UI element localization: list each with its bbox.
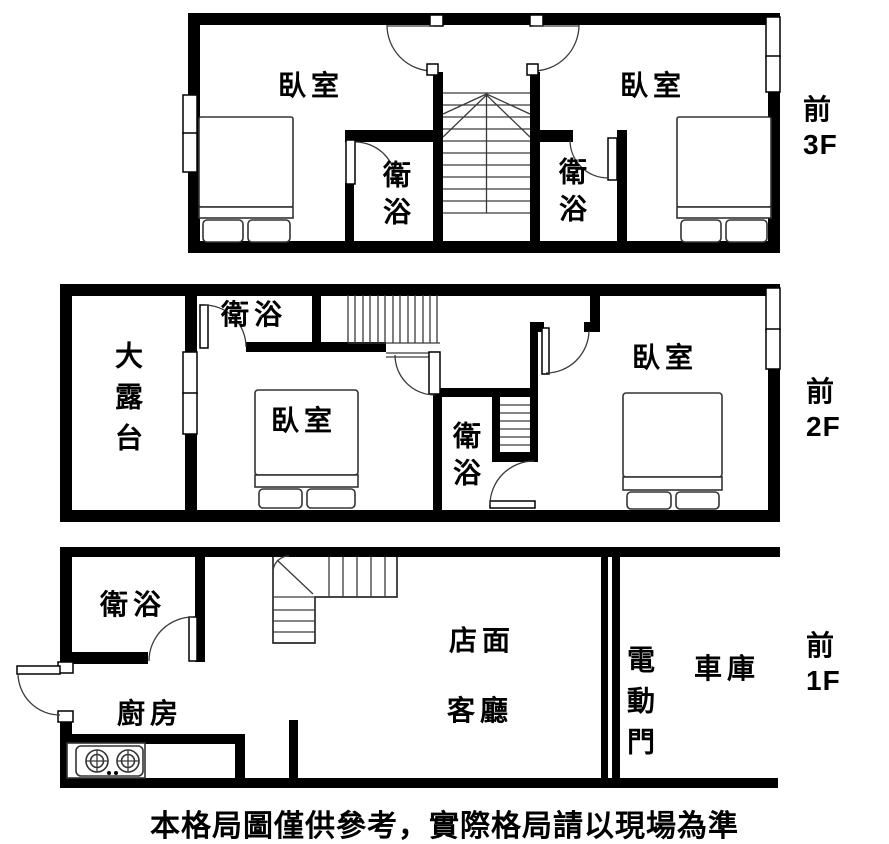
door-leaf	[200, 305, 208, 348]
bed-footboard	[623, 477, 722, 490]
wall-segment	[60, 547, 780, 557]
side-label-level: 1F	[806, 663, 841, 698]
wall-segment	[60, 510, 780, 522]
floor-1f	[17, 547, 780, 788]
kitchen-wall	[235, 734, 245, 788]
floor-side-label-3f: 前 3F	[803, 92, 838, 162]
door-swing-arc	[149, 617, 193, 661]
wall-segment	[60, 284, 72, 522]
door-jamb	[530, 15, 543, 26]
room-label-bath-top-2f: 衛浴	[221, 301, 287, 329]
wall-stub	[289, 720, 298, 778]
door-leaf	[608, 138, 617, 180]
disclaimer-caption: 本格局圖僅供參考，實際格局請以現場為準	[150, 801, 739, 844]
door-leaf	[429, 352, 440, 394]
door-leaf	[346, 140, 355, 184]
wall-segment	[345, 183, 354, 253]
room-label-bedroom-right-2f: 臥室	[632, 344, 698, 372]
window	[183, 352, 197, 394]
window	[766, 56, 780, 92]
room-label-bedroom-right-3f: 臥室	[620, 72, 686, 100]
door-threshold	[386, 353, 429, 357]
stair-treads	[273, 610, 315, 632]
door-leaf	[527, 64, 538, 75]
stairs-1f	[273, 556, 397, 643]
wall-segment	[60, 778, 778, 788]
room-label-bath-left-3f: 衛浴	[381, 160, 409, 234]
bed-pillow	[248, 220, 290, 242]
room-label-bath-1f: 衛浴	[100, 591, 166, 619]
room-label-bath-middle-2f: 衛浴	[451, 421, 479, 495]
stair-outline	[273, 557, 397, 643]
stair-winder-diagonal	[277, 560, 313, 594]
door-swing-arc	[546, 331, 589, 373]
room-label-storefront-1f: 店面	[449, 627, 515, 655]
stairs-3f	[443, 93, 530, 213]
stair-treads	[348, 295, 437, 343]
side-label-level: 2F	[806, 409, 841, 444]
bed-pillow	[681, 220, 721, 242]
stairs-2f	[348, 295, 440, 343]
floor-side-label-2f: 前 2F	[806, 374, 841, 444]
bed-pillow	[203, 220, 243, 242]
door-swing-arc	[490, 461, 534, 505]
window	[183, 133, 197, 172]
window	[766, 288, 780, 330]
window	[183, 95, 197, 134]
bed-right-2f	[623, 393, 722, 509]
wall-segment	[188, 13, 780, 25]
bed-footboard	[255, 475, 358, 487]
room-label-living-room-1f: 客廳	[447, 697, 513, 725]
wall-segment	[60, 284, 780, 296]
stove-knob	[114, 771, 118, 775]
wall-segment	[312, 284, 321, 352]
stairwell-wall-left	[433, 72, 443, 242]
door-jamb	[430, 15, 443, 26]
bed-mattress	[199, 117, 293, 207]
bed-pillow	[627, 492, 671, 509]
bed-mattress	[623, 393, 722, 477]
bed-footboard	[677, 207, 771, 218]
window	[766, 329, 780, 369]
wall-segment	[433, 388, 538, 397]
door-leaf	[17, 666, 60, 674]
door-swing-arc	[18, 673, 60, 715]
door-jamb	[58, 711, 73, 722]
wall-segment	[345, 130, 443, 142]
stove-knob	[107, 771, 111, 775]
kitchen-stove	[67, 743, 145, 778]
floor-3f	[183, 13, 780, 253]
bed-pillow	[676, 492, 719, 509]
room-label-bedroom-middle-2f: 臥室	[271, 407, 337, 435]
floor-plan: 臥室 臥室 衛浴 衛浴 大露台 衛浴 臥室 衛浴 臥室 衛浴 廚房 店面 客廳 …	[0, 0, 889, 844]
bed-footboard	[199, 207, 293, 218]
wall-segment	[433, 388, 442, 510]
bed-right-3f	[677, 117, 771, 242]
bed-pillow	[259, 489, 302, 508]
wall-segment	[540, 130, 573, 142]
stair-treads	[329, 557, 385, 597]
bed-mattress	[677, 117, 771, 207]
door-leaf	[189, 617, 197, 661]
room-label-garage-1f: 車庫	[694, 655, 760, 683]
side-label-direction: 前	[806, 628, 841, 663]
side-label-direction: 前	[806, 374, 841, 409]
door-leaf	[490, 501, 535, 508]
outer-walls-1f	[60, 547, 780, 788]
electric-door-rail	[612, 557, 620, 778]
room-label-kitchen-1f: 廚房	[117, 700, 183, 728]
side-label-direction: 前	[803, 92, 838, 127]
room-label-bedroom-left-3f: 臥室	[278, 72, 344, 100]
bed-pillow	[307, 489, 355, 508]
wall-segment	[492, 397, 500, 454]
room-label-terrace-2f: 大露台	[113, 341, 141, 464]
wall-segment	[584, 322, 600, 332]
stairwell-wall-right	[530, 72, 540, 242]
bed-left-3f	[199, 117, 293, 242]
window	[183, 393, 197, 434]
side-label-level: 3F	[803, 127, 838, 162]
wall-segment	[617, 130, 627, 253]
electric-door-rail	[601, 557, 608, 778]
floor-side-label-1f: 前 1F	[806, 628, 841, 698]
door-swing-arc	[387, 25, 433, 71]
entry-door-1f	[17, 662, 73, 722]
door-leaf	[542, 328, 549, 374]
floor-2f	[60, 284, 780, 522]
stair-treads	[500, 405, 530, 445]
door-leaf	[427, 64, 438, 75]
room-label-bath-right-3f: 衛浴	[557, 157, 585, 231]
bath-door-1f	[149, 617, 197, 661]
wall-segment	[530, 322, 538, 462]
bed-pillow	[726, 220, 767, 242]
window	[766, 17, 780, 57]
door-swing-arc	[533, 25, 579, 71]
room-label-electric-door-1f: 電動門	[625, 645, 653, 768]
small-stairs-2f	[500, 405, 530, 445]
